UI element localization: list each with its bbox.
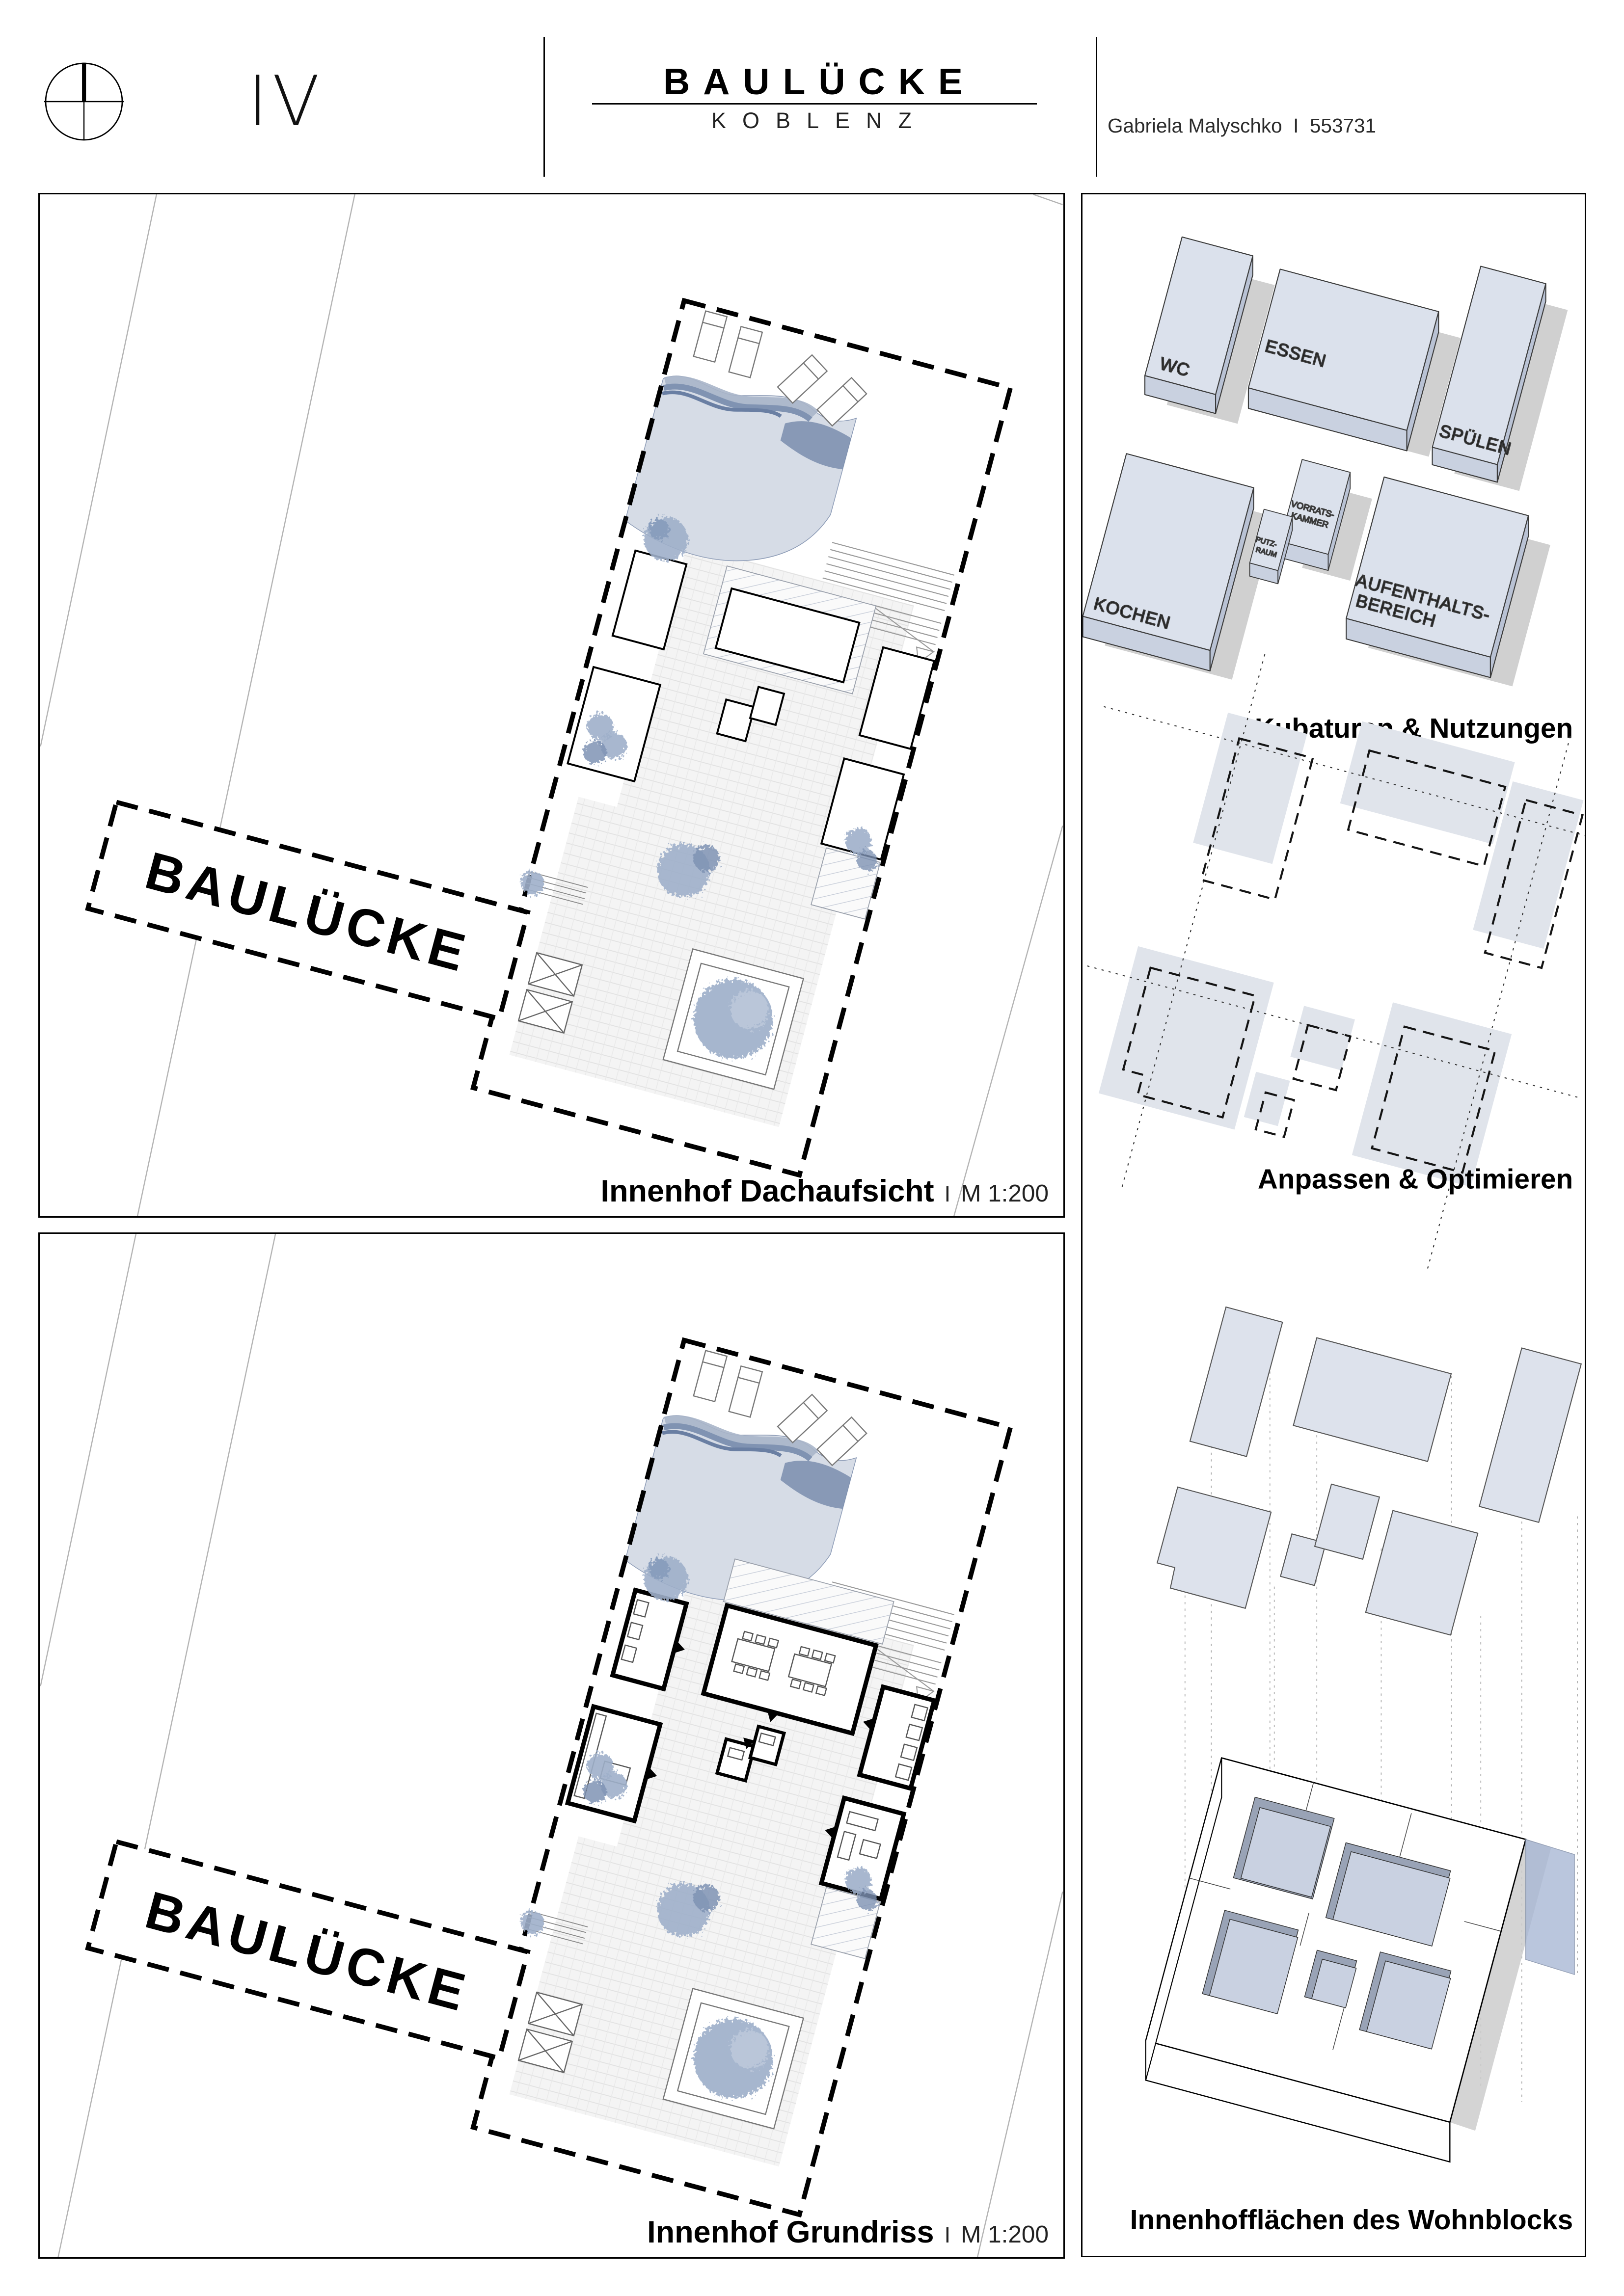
floor-plan-caption: Innenhof GrundrissIM 1:200 [647,2216,1049,2251]
baulueke-gap: BAULÜCKE [88,1842,528,2058]
baulueke-gap: BAULÜCKE [88,802,528,1018]
massing-box-essen: ESSEN [1248,269,1438,451]
courtyard-slabs [1157,1307,1581,1635]
wohnblock-axon [1146,1758,1574,2162]
floor-plan-panel: BAULÜCKE Innenhof GrundrissIM 1:200 [38,1232,1065,2259]
project-subtitle: KOBLENZ [543,109,1096,134]
roof-plan-panel: BAULÜCKE Innenhof DachaufsichtIM 1:200 [38,193,1065,1218]
header-divider [1096,37,1097,177]
roof-plan-caption: Innenhof DachaufsichtIM 1:200 [601,1175,1049,1210]
courtyard-diagram: Innenhofflächen des Wohnblocks [1130,1307,1581,2236]
optimize-title: Anpassen & Optimieren [1258,1164,1573,1195]
massing-diagram: WC ESSEN SPÜLEN [1083,237,1573,744]
optimize-fills [1099,680,1585,1195]
project-title: BAULÜCKE [543,62,1096,105]
north-compass-icon [41,59,127,144]
credit-author: Gabriela Malyschko I 553731 [1108,115,1376,147]
diagram-column-panel: WC ESSEN SPÜLEN [1081,193,1586,2257]
header-divider [543,37,545,177]
courtyard-title: Innenhofflächen des Wohnblocks [1130,2205,1573,2236]
title-rule [592,103,1037,105]
presentation-sheet: IV BAULÜCKE KOBLENZ Gabriela Malyschko I… [0,0,1624,2296]
diagram-column: WC ESSEN SPÜLEN [1083,194,1585,2256]
floor-plan-drawing: BAULÜCKE [40,1234,1063,2257]
roof-plan-drawing: BAULÜCKE [40,194,1063,1216]
sheet-number: IV [247,62,324,143]
